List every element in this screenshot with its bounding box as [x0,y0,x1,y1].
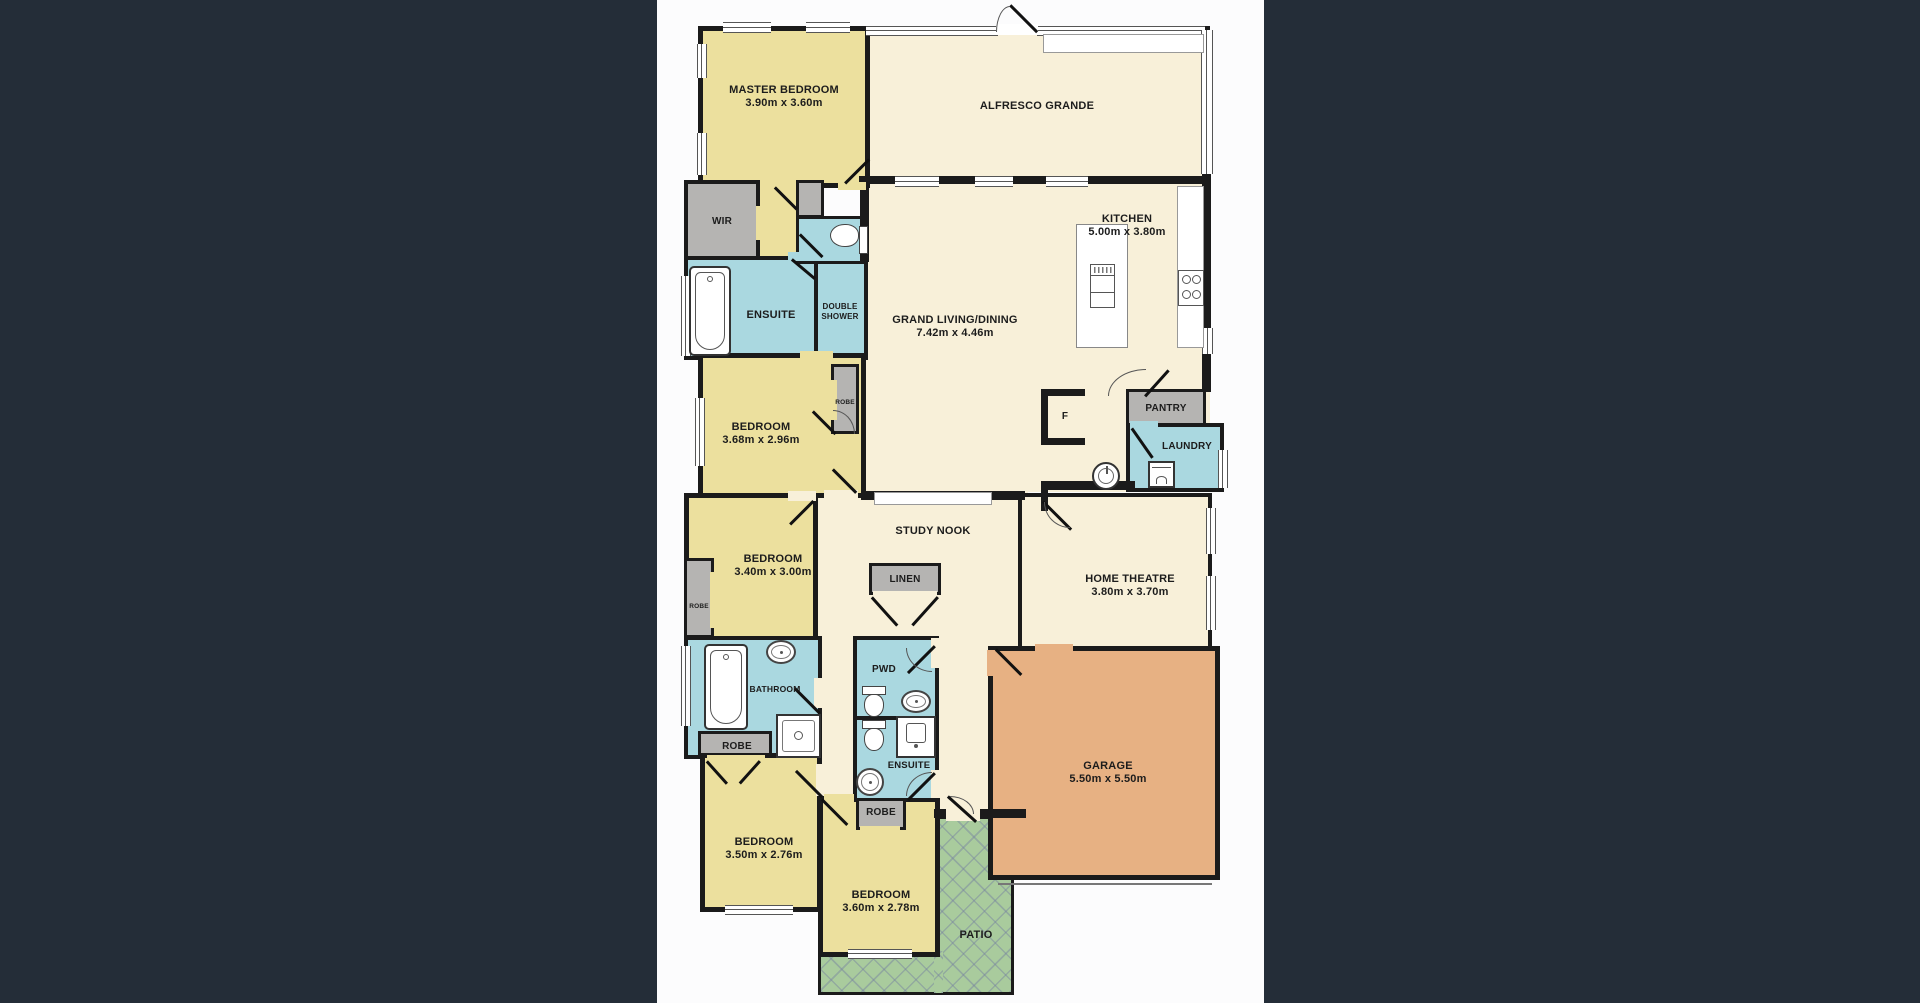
label-double-shower: DOUBLESHOWER [745,302,935,323]
label-line: 3.80m x 3.70m [1035,586,1225,600]
door-opening [824,794,854,804]
window [723,22,771,33]
door-opening [987,650,997,676]
label-line: 3.40m x 3.00m [678,566,868,580]
fixture-sinkr-icon [856,768,884,796]
label-bathroom: BATHROOM [680,684,870,695]
label-line: 3.50m x 2.76m [669,849,859,863]
fixture-part [1156,476,1167,484]
label-line: SHOWER [745,312,935,323]
label-pwd: PWD [789,664,979,677]
fixture-part [707,276,713,282]
fixture-washer-icon [1148,461,1175,488]
door-opening [838,182,866,190]
fixture-part [864,728,883,751]
label-line: 5.50m x 5.50m [1013,773,1203,787]
fixture-line-icon [998,883,1212,885]
label-study-nook: STUDY NOOK [838,525,1028,539]
label-line: WIR [627,216,817,229]
label-line: BATHROOM [680,684,870,695]
fixture-wc-h-icon [830,226,868,254]
window [895,176,939,187]
label-line: PWD [789,664,979,677]
fixture-ltub-icon [1092,462,1120,490]
floorplan-page: MASTER BEDROOM3.90m x 3.60mALFRESCO GRAN… [0,0,1920,1003]
label-robe-bedroom5: ROBE [786,807,976,820]
fixture-part [1106,466,1108,474]
label-line: F [970,411,1160,424]
door-opening [860,826,900,834]
fixture-part [794,731,803,740]
label-patio: PATIO [881,929,1071,943]
window [806,22,850,33]
label-fridge: F [970,411,1160,424]
fixture-vanity-icon [896,716,936,758]
fixture-part [1152,467,1171,468]
label-bedroom-2: BEDROOM3.68m x 2.96m [666,421,856,448]
fixture-part [723,654,729,660]
label-kitchen: KITCHEN5.00m x 3.80m [1032,213,1222,240]
label-robe-bathroom: ROBE [642,741,832,754]
fixture-part [830,224,859,247]
label-line: 3.90m x 3.60m [689,97,879,111]
fixture-part [1192,275,1201,284]
fixture-wc-v-icon [862,720,886,752]
fixture-panel-icon [1043,34,1204,53]
label-line: STUDY NOOK [838,525,1028,539]
wall-segment [1202,354,1211,392]
label-home-theatre: HOME THEATRE3.80m x 3.70m [1035,573,1225,600]
fixture-part [859,226,868,254]
window [1046,176,1088,187]
door-opening [873,591,937,599]
fixture-part [869,781,872,784]
fixture-bench-icon [1177,186,1204,348]
label-line: GARAGE [1013,760,1203,774]
fixture-part [1192,290,1201,299]
label-robe-bedroom2: ROBE [750,398,940,407]
window [725,905,793,915]
label-line: ROBE [786,807,976,820]
label-line: BEDROOM [666,421,856,435]
label-line: ALFRESCO GRANDE [942,100,1132,114]
fixture-part [1090,264,1115,308]
label-line: PATIO [881,929,1071,943]
window [848,949,912,959]
fixture-part [1182,290,1191,299]
label-garage: GARAGE5.50m x 5.50m [1013,760,1203,787]
fixture-part [914,744,918,748]
label-line: 3.60m x 2.78m [786,902,976,916]
label-laundry: LAUNDRY [1092,441,1282,454]
fixture-sinko-icon [766,640,796,664]
fixture-part [1182,275,1191,284]
label-line: ENSUITE [814,760,1004,772]
label-line: 5.00m x 3.80m [1032,226,1222,240]
label-master-bedroom: MASTER BEDROOM3.90m x 3.60m [689,84,879,111]
fixture-part [915,700,918,703]
room-wc-gray-block [796,180,824,218]
window [1206,508,1216,554]
wall-segment [1041,481,1135,490]
window [697,133,707,175]
label-line: ROBE [642,741,832,754]
label-line: BEDROOM [678,553,868,567]
label-alfresco: ALFRESCO GRANDE [942,100,1132,114]
room-patio-patch [934,951,943,993]
window [1218,450,1228,488]
label-line: ROBE [604,602,794,611]
fixture-desk-icon [874,492,992,505]
door-opening [1035,644,1073,653]
door-opening [800,351,833,360]
room-laundry [1126,423,1224,492]
label-bedroom-5: BEDROOM3.60m x 2.78m [786,889,976,916]
fixture-sinko-icon [901,690,931,713]
fixture-part [864,694,883,717]
fixture-cooktop-icon [1178,270,1204,306]
label-bedroom-3: BEDROOM3.40m x 3.00m [678,553,868,580]
label-line: ROBE [750,398,940,407]
label-bedroom-4: BEDROOM3.50m x 2.76m [669,836,859,863]
label-line: BEDROOM [786,889,976,903]
label-line: LAUNDRY [1092,441,1282,454]
fixture-part [780,651,783,654]
label-wir: WIR [627,216,817,229]
label-robe-bedroom3: ROBE [604,602,794,611]
label-line: 3.68m x 2.96m [666,434,856,448]
fixture-part [906,723,926,743]
window [975,176,1013,187]
label-line: BEDROOM [669,836,859,850]
window [866,26,998,36]
wall-segment [1041,438,1085,445]
label-line: KITCHEN [1032,213,1222,227]
label-line: 7.42m x 4.46m [860,327,1050,341]
door-opening [710,572,718,628]
fixture-island-icon [1076,224,1128,348]
label-ensuite-2: ENSUITE [814,760,1004,772]
window [697,44,707,78]
label-line: DOUBLE [745,302,935,313]
label-line: HOME THEATRE [1035,573,1225,587]
label-line: MASTER BEDROOM [689,84,879,98]
